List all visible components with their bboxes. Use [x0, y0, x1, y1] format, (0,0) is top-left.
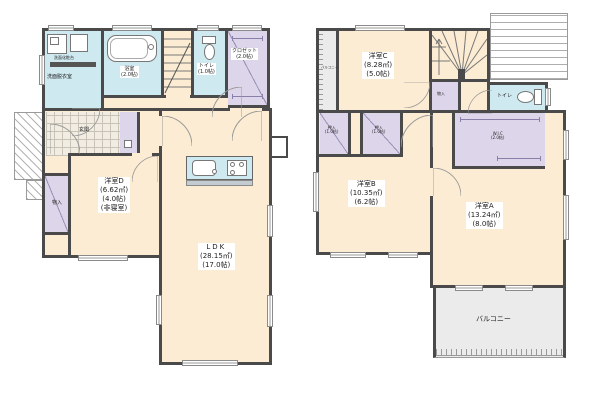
window: [267, 295, 273, 327]
stairs-2f: [432, 31, 487, 79]
wall-segment: [336, 31, 339, 110]
wall-segment: [319, 154, 403, 157]
door-arc: [232, 111, 262, 141]
wic-label: W.I.C (2.0帖): [491, 132, 504, 141]
door-arc: [132, 156, 158, 182]
storage-1f-label: 物入: [51, 200, 63, 206]
window: [78, 255, 128, 261]
kitchen-faucet: [212, 169, 217, 174]
ldk-label: LDK (28.15㎡) (17.0帖): [198, 243, 235, 270]
window: [182, 360, 238, 366]
window: [330, 252, 366, 258]
storage-genkan-shelf: [124, 140, 132, 148]
bath-label: 浴室 (2.0帖): [120, 66, 139, 78]
wall-segment: [45, 232, 68, 235]
balcony-side-label: バルコニー: [321, 66, 338, 70]
oshiire-2-label: 押入 (1.0帖): [372, 126, 385, 135]
stove-burner: [230, 170, 235, 175]
room-c-label: 洋室C (8.28㎡) (5.0帖): [362, 52, 394, 79]
window: [563, 195, 569, 240]
stairs-1f-treads: [164, 31, 191, 95]
bath-size: (2.0帖): [121, 72, 138, 78]
hanger-pipe: [232, 38, 263, 39]
room-b-name: 洋室B: [350, 180, 383, 189]
wall-segment: [348, 113, 351, 154]
door-opening: [166, 95, 190, 98]
wall-segment: [455, 166, 545, 169]
flue-niche: [270, 136, 288, 158]
room-a-label: 洋室A (13.24㎡) (8.0帖): [466, 202, 503, 229]
balcony-door: [505, 285, 533, 291]
door-arc: [468, 90, 492, 114]
genkan-label: 玄関: [78, 127, 90, 133]
room-b-label: 洋室B (10.35㎡) (6.2帖): [348, 180, 385, 207]
wall-segment: [137, 112, 140, 156]
room-c-name: 洋室C: [364, 52, 392, 61]
window: [156, 295, 162, 325]
window: [545, 88, 551, 106]
window: [267, 205, 273, 237]
balcony-label: バルコニー: [474, 315, 513, 324]
hanger-pipe: [497, 158, 541, 159]
vanity-label: 洗面化粧台: [54, 56, 74, 60]
room-d-jo: (4.0帖): [100, 195, 128, 204]
toilet-1f-size: (1.0帖): [198, 69, 215, 75]
toilet-1f-label: トイレ (1.0帖): [197, 63, 216, 75]
door-arc: [401, 115, 433, 147]
toilet-bowl-1f: [204, 44, 215, 60]
room-d-name: 洋室D: [100, 177, 128, 186]
toilet-tank-1f: [202, 36, 216, 44]
balcony-door: [455, 285, 483, 291]
room-a-m2: (13.24㎡): [468, 211, 501, 220]
window: [388, 252, 418, 258]
ldk-jo: (17.0帖): [200, 261, 233, 270]
room-d-m2: (6.62㎡): [100, 186, 128, 195]
window: [112, 25, 152, 31]
storage-2f-label: 物入: [437, 92, 445, 96]
oshiire-2-size: (1.0帖): [372, 130, 385, 134]
wall-segment: [68, 156, 71, 258]
toilet-bowl-2f: [517, 91, 534, 103]
closet-1f-size: (2.0帖): [232, 54, 257, 60]
room-b-m2: (10.35㎡): [350, 189, 383, 198]
stairs-1f: [164, 31, 191, 95]
door-arc: [162, 116, 192, 146]
closet-1f-label: クロゼット (2.0帖): [231, 48, 258, 60]
window: [232, 25, 262, 31]
stairs-2f-winder: [432, 31, 487, 79]
roof-over-porch: [490, 13, 568, 80]
balcony-side-railing: [319, 31, 323, 110]
room-a-jo: (8.0帖): [468, 220, 501, 229]
door-arc: [433, 168, 461, 196]
hanger-pipe: [460, 119, 540, 120]
stove-burner: [239, 162, 244, 167]
bath-faucet: [148, 44, 154, 50]
ldk-name: LDK: [200, 243, 233, 252]
room-c-jo: (5.0帖): [364, 70, 392, 79]
room-c-m2: (8.28㎡): [364, 61, 392, 70]
floor1-ldk-block: [159, 108, 272, 365]
floor-plan-canvas: 洗面脱衣室 洗面化粧台 浴室 (2.0帖) トイレ (1.0帖) クロゼット (…: [0, 0, 600, 400]
window: [355, 25, 405, 31]
oshiire-1-size: (1.0帖): [325, 130, 338, 134]
oshiire-1-label: 押入 (1.0帖): [325, 126, 338, 135]
room-b-jo: (6.2帖): [350, 198, 383, 207]
wall-segment: [458, 82, 461, 110]
toilet-2f-label: トイレ: [496, 93, 513, 99]
bathtub-inner: [110, 38, 148, 59]
washroom-label: 洗面脱衣室: [46, 74, 73, 80]
laundry-counter: [70, 34, 88, 52]
window: [563, 130, 569, 160]
room-d-note: (非寝室): [100, 204, 128, 213]
vanity-counter: [50, 62, 96, 67]
kitchen-counter-edge: [186, 180, 253, 186]
room-d-label: 洋室D (6.62㎡) (4.0帖) (非寝室): [98, 177, 130, 213]
wic-size: (2.0帖): [491, 136, 504, 140]
room-a-name: 洋室A: [468, 202, 501, 211]
window: [313, 172, 319, 212]
window: [48, 25, 74, 31]
door-arc: [404, 82, 430, 108]
wall-segment: [360, 113, 363, 154]
window: [39, 55, 45, 85]
washing-machine: [50, 37, 59, 45]
window: [197, 25, 219, 31]
stove-burner: [230, 162, 235, 167]
balcony-railing: [436, 349, 563, 356]
toilet-tank-2f: [534, 89, 542, 105]
ldk-m2: (28.15㎡): [200, 252, 233, 261]
storage-2f: [432, 82, 458, 110]
